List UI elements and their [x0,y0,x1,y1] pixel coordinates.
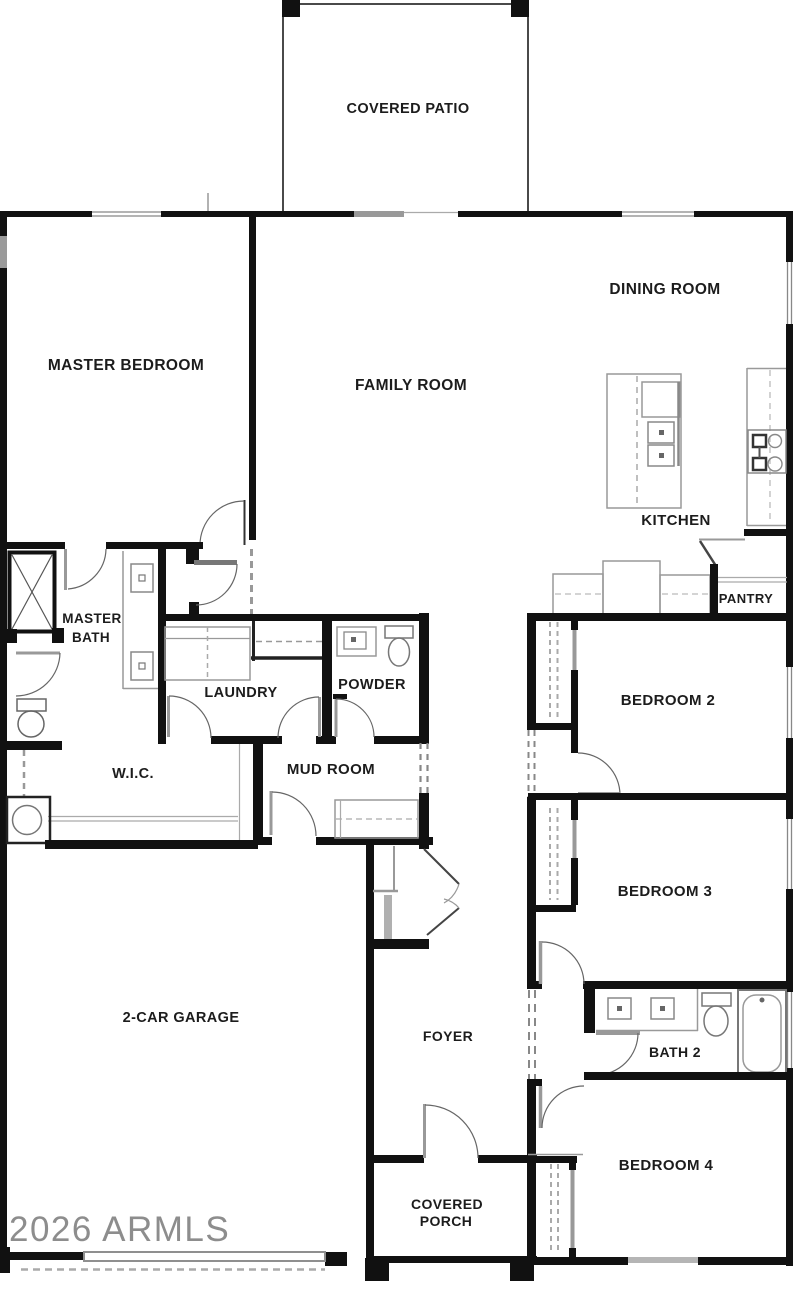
svg-text:POWDER: POWDER [338,677,406,693]
svg-text:DINING ROOM: DINING ROOM [609,281,720,298]
svg-text:PORCH: PORCH [420,1213,473,1229]
svg-text:PANTRY: PANTRY [719,591,773,606]
svg-text:FOYER: FOYER [423,1028,473,1044]
svg-text:W.I.C.: W.I.C. [112,766,154,782]
svg-text:KITCHEN: KITCHEN [641,512,710,529]
svg-text:MASTER: MASTER [62,611,121,626]
svg-text:2026 ARMLS: 2026 ARMLS [9,1210,230,1249]
svg-text:FAMILY ROOM: FAMILY ROOM [355,377,467,394]
svg-text:LAUNDRY: LAUNDRY [204,685,277,701]
svg-text:2-CAR GARAGE: 2-CAR GARAGE [123,1010,240,1026]
svg-text:MASTER BEDROOM: MASTER BEDROOM [48,357,204,374]
svg-text:BEDROOM 4: BEDROOM 4 [619,1157,714,1174]
svg-text:BATH 2: BATH 2 [649,1044,701,1060]
svg-text:BEDROOM 3: BEDROOM 3 [618,883,712,900]
svg-text:BATH: BATH [72,630,110,645]
svg-text:COVERED PATIO: COVERED PATIO [346,101,469,117]
svg-text:COVERED: COVERED [411,1196,483,1212]
svg-text:MUD ROOM: MUD ROOM [287,761,375,778]
svg-text:BEDROOM 2: BEDROOM 2 [621,692,715,709]
